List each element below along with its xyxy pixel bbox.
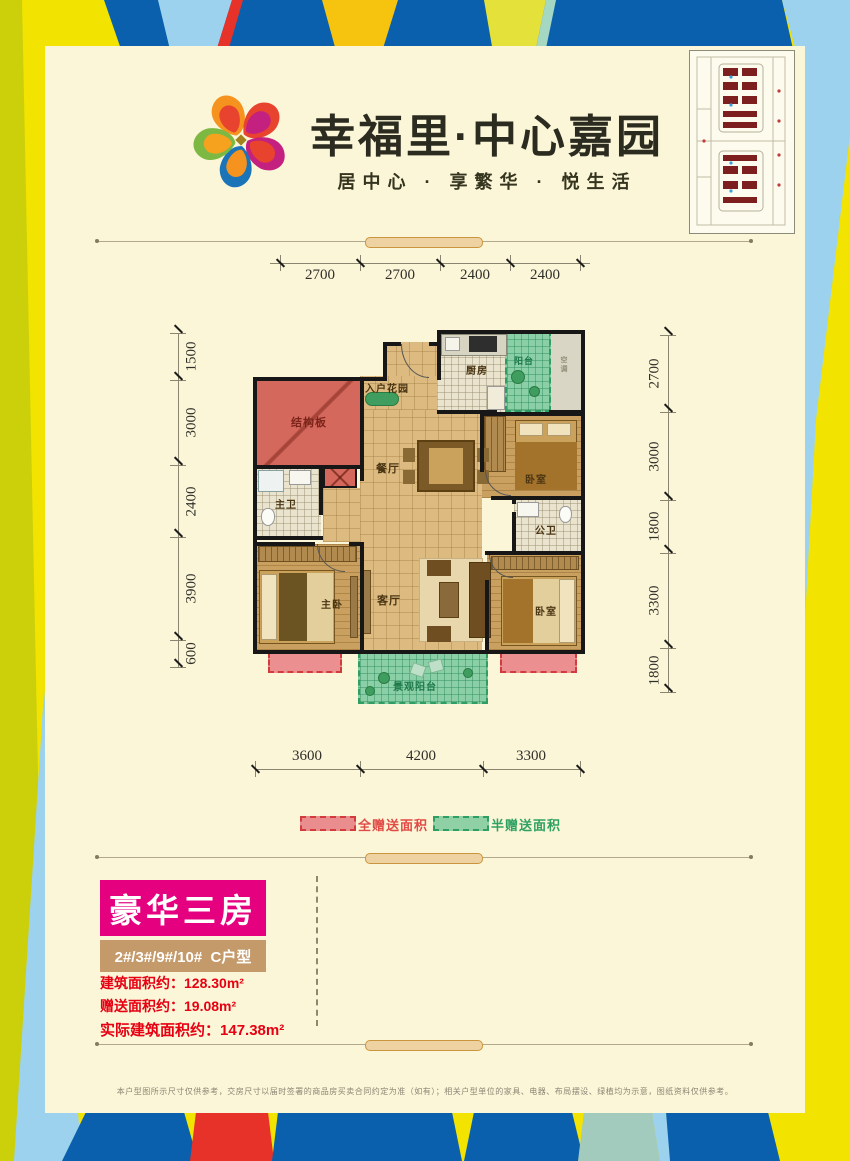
tv-bench-living [363, 570, 371, 634]
wall [253, 650, 585, 654]
floor-balcony-top [505, 330, 551, 412]
view-balcony-plant [463, 668, 473, 678]
room-label-bedroom-bottom: 卧室 [535, 603, 557, 618]
room-label-view-balcony: 景观阳台 [393, 678, 437, 693]
bath-sink [517, 502, 539, 517]
gift-bay-right [500, 652, 577, 673]
room-label-dining: 餐厅 [376, 460, 400, 476]
wall [253, 536, 323, 540]
gift-bay-left [268, 652, 342, 673]
sofa-single [427, 626, 451, 642]
dim-tick [660, 335, 676, 336]
dining-chair [403, 470, 415, 484]
dim-top-4: 2400 [515, 267, 575, 284]
dining-chair [403, 448, 415, 462]
dim-left-4: 3900 [184, 567, 201, 611]
wall [360, 542, 364, 654]
dim-tick [440, 255, 441, 271]
page-subtitle: 居中心 · 享繁华 · 悦生活 [297, 168, 677, 194]
wall [253, 465, 364, 469]
dim-tick [360, 761, 361, 777]
dim-top-1: 2700 [290, 267, 350, 284]
unit-type-badge: 豪华三房 [100, 880, 266, 936]
pillow [261, 574, 277, 640]
dim-tick [360, 255, 361, 271]
unit-buildings-box: 2#/3#/9#/10# C户型 [100, 940, 266, 972]
floor-corridor [323, 488, 360, 542]
pillow [547, 423, 571, 436]
wall [360, 467, 364, 481]
pillow [519, 423, 543, 436]
balcony-plant [511, 370, 525, 384]
divider-bottom-capsule [365, 1040, 483, 1051]
wall [253, 465, 257, 654]
balcony-plant [529, 386, 540, 397]
wall [319, 467, 323, 515]
dim-line-left [178, 333, 179, 667]
wall [360, 377, 364, 469]
dim-line-right [668, 335, 669, 692]
wardrobe-bedroom-top [484, 416, 506, 472]
kitchen-sink [445, 337, 460, 351]
wall [253, 542, 315, 546]
dim-right-3: 1800 [647, 505, 664, 549]
kitchen-stove [469, 336, 497, 352]
dim-right-2: 3000 [647, 435, 664, 479]
toilet [261, 508, 275, 526]
pillow [559, 579, 575, 643]
dim-tick [660, 412, 676, 413]
wall [485, 580, 489, 654]
wall [512, 512, 516, 553]
room-label-bedroom-top: 卧室 [525, 471, 547, 486]
dim-left-5: 600 [184, 632, 201, 676]
dim-tick [280, 255, 281, 271]
dim-tick [170, 537, 186, 538]
dim-tick [660, 500, 676, 501]
flower-logo-icon [191, 88, 291, 192]
legend-swatch-full-gift [300, 816, 356, 831]
dim-left-1: 1500 [184, 335, 201, 379]
wall [512, 498, 516, 504]
wall [383, 342, 387, 380]
dim-left-2: 3000 [184, 401, 201, 445]
toilet [559, 506, 572, 523]
room-label-master-bath: 主卫 [275, 496, 297, 511]
dim-right-5: 1800 [647, 649, 664, 693]
structure-hatch-box [323, 467, 357, 488]
dim-tick [580, 761, 581, 777]
card: 幸福里·中心嘉园 居中心 · 享繁华 · 悦生活 [45, 46, 805, 1113]
area-line-actual: 实际建筑面积约：147.38m² [100, 1019, 284, 1040]
dim-line-bottom [255, 769, 580, 770]
page-title: 幸福里·中心嘉园 [297, 100, 677, 165]
vertical-dashed-separator [316, 876, 318, 1026]
blanket [503, 579, 533, 643]
dim-bottom-2: 4200 [391, 748, 451, 765]
wall [491, 496, 585, 500]
coffee-table [439, 582, 459, 618]
area-line-gift: 赠送面积约：19.08m² [100, 996, 284, 1016]
room-label-kitchen: 厨房 [466, 362, 488, 377]
floor-plan: 结构板 入户花园 厨房 阳台 空调 卧室 餐厅 主卫 主卧 客厅 公卫 卧室 景… [253, 330, 585, 706]
legend-label-half-gift: 半赠送面积 [491, 815, 561, 834]
dim-line-top [270, 263, 590, 264]
area-line-built: 建筑面积约：128.30m² [100, 973, 284, 993]
divider-top-capsule [365, 237, 483, 248]
room-label-balcony-top: 阳台 [514, 354, 534, 367]
view-balcony-plant [365, 686, 375, 696]
room-label-ac: 空调 [558, 356, 568, 374]
room-label-living: 客厅 [377, 592, 401, 608]
kitchen-cabinet [487, 386, 505, 410]
tv-cabinet-master [350, 576, 358, 638]
bath-sink [289, 470, 311, 485]
wall [437, 330, 441, 380]
blanket [279, 573, 307, 641]
dim-tick [170, 465, 186, 466]
unit-type-badge-label: 豪华三房 [109, 884, 257, 932]
site-plan-map [689, 50, 795, 234]
unit-area-list: 建筑面积约：128.30m² 赠送面积约：19.08m² 实际建筑面积约：147… [100, 973, 284, 1043]
dim-left-3: 2400 [184, 480, 201, 524]
dim-tick [660, 553, 676, 554]
legend-swatch-half-gift [433, 816, 489, 831]
view-balcony-plant [378, 672, 390, 684]
dim-top-2: 2700 [370, 267, 430, 284]
unit-buildings-label: 2#/3#/9#/10# C户型 [115, 946, 252, 967]
poster: 幸福里·中心嘉园 居中心 · 享繁华 · 悦生活 [0, 0, 850, 1161]
dim-tick [255, 761, 256, 777]
dim-tick [483, 761, 484, 777]
dim-bottom-3: 3300 [501, 748, 561, 765]
dim-right-1: 2700 [647, 352, 664, 396]
wall [485, 551, 585, 555]
room-label-master-bedroom: 主卧 [321, 596, 343, 611]
dim-bottom-1: 3600 [277, 748, 337, 765]
room-label-public-bath: 公卫 [535, 522, 557, 537]
dim-tick [580, 255, 581, 271]
room-label-entry-garden: 入户花园 [365, 380, 409, 395]
dim-tick [170, 380, 186, 381]
wall [480, 412, 585, 416]
legend-label-full-gift: 全赠送面积 [358, 815, 428, 834]
dim-right-4: 3300 [647, 579, 664, 623]
room-label-structure: 结构板 [291, 414, 327, 430]
dining-table-top [429, 448, 463, 484]
sofa-single [427, 560, 451, 576]
wall [480, 414, 484, 472]
dim-top-3: 2400 [445, 267, 505, 284]
wall [581, 330, 585, 654]
wall [437, 330, 585, 334]
divider-middle-capsule [365, 853, 483, 864]
shower [258, 470, 284, 492]
dim-tick [510, 255, 511, 271]
disclaimer-text: 本户型图所示尺寸仅供参考，交房尺寸以届时签署的商品房买卖合同约定为准（如有）；相… [75, 1086, 775, 1097]
